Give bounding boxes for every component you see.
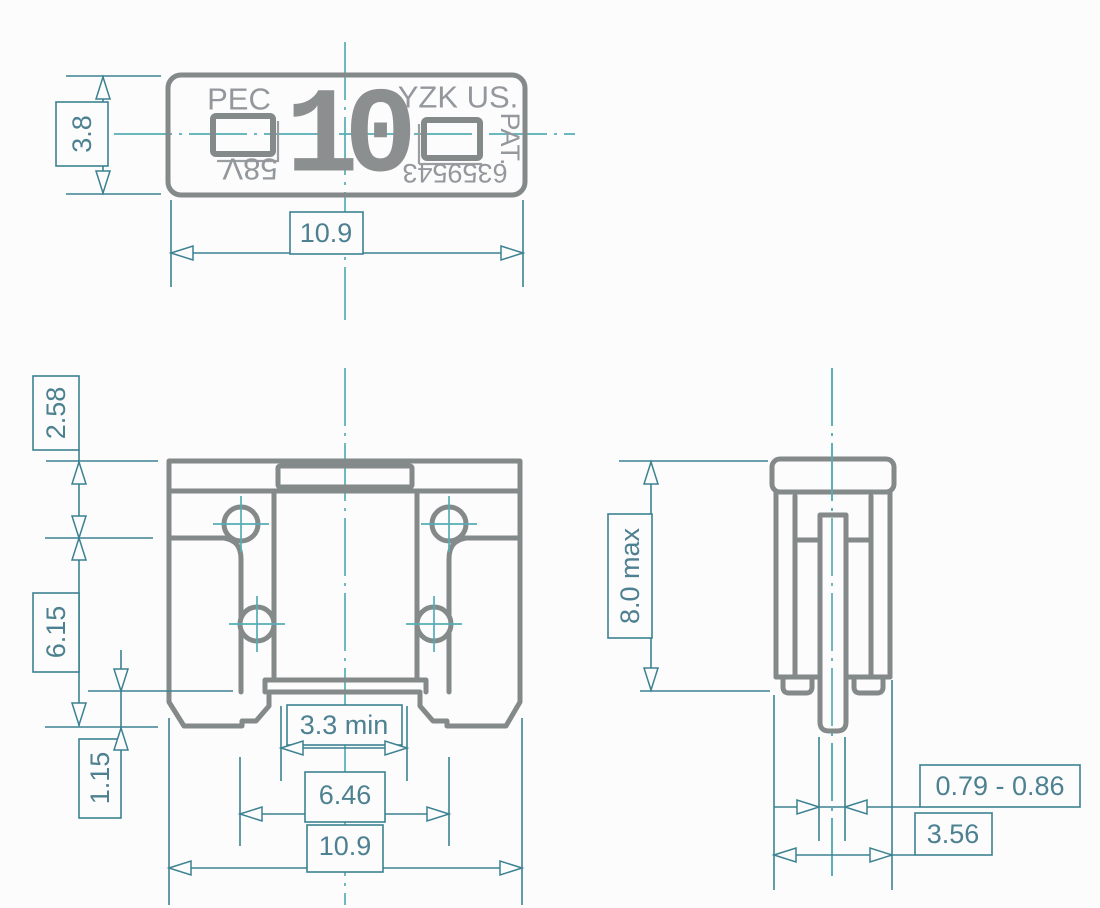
dim-top-height: 3.8	[67, 115, 97, 153]
right-terminal-column	[449, 538, 466, 692]
rivet-bottom-right-crosshair	[406, 596, 462, 652]
marking-patent-label: PAT.	[495, 112, 525, 165]
marking-patent-number: 6359543	[402, 158, 507, 188]
dim-terminal-span: 6.46	[319, 780, 372, 810]
dim-probe-gap: 3.3 min	[300, 710, 389, 740]
arrow-left-side-depth	[774, 848, 796, 862]
arrow-down-body-height	[72, 703, 86, 725]
left-terminal-column	[224, 538, 241, 692]
arrow-down-cap-height	[72, 516, 86, 538]
marking-voltage: 58V	[222, 152, 277, 187]
arrow-down-foot-height	[114, 669, 128, 691]
rivet-top-right-crosshair	[421, 496, 477, 552]
arrow-left-top-width	[171, 246, 193, 260]
arrow-right-terminal-thickness	[797, 800, 819, 814]
arrow-left-front-width	[169, 861, 191, 875]
dim-cap-height: 2.58	[41, 387, 71, 440]
arrow-right-side-depth	[870, 848, 892, 862]
drawing-canvas: PEC 10 YZK US. PAT. 58V 6359543	[0, 0, 1100, 908]
right-terminal-window	[424, 120, 480, 158]
top-view: PEC 10 YZK US. PAT. 58V 6359543	[168, 69, 525, 208]
side-cap	[772, 459, 894, 492]
dim-side-height: 8.0 max	[615, 527, 645, 624]
arrow-left-terminal-thickness	[845, 800, 867, 814]
arrow-down-top-height	[96, 171, 110, 193]
left-terminal-window	[213, 116, 273, 154]
arrow-up-top-height	[96, 77, 110, 99]
arrow-up-cap-height	[72, 462, 86, 484]
arrow-up-side-height	[644, 462, 658, 484]
rivet-bottom-left-crosshair	[229, 596, 285, 652]
arrow-right-terminal-span	[427, 807, 449, 821]
dim-terminal-thickness: 0.79 - 0.86	[935, 771, 1064, 801]
marking-amp-rating: 10	[285, 69, 411, 208]
arrow-left-terminal-span	[240, 807, 262, 821]
dimension-labels: 3.8 10.9 2.58 6.15 1.15 3.3 min 6.46 10.…	[33, 102, 1080, 872]
rivet-top-left-crosshair	[213, 496, 269, 552]
dim-front-width: 10.9	[319, 831, 372, 861]
arrow-right-top-width	[501, 246, 523, 260]
arrow-up-body-height	[72, 538, 86, 560]
dim-foot-height: 1.15	[85, 752, 115, 805]
fuse-technical-drawing: PEC 10 YZK US. PAT. 58V 6359543	[0, 0, 1100, 908]
side-view	[772, 368, 894, 878]
dim-side-depth: 3.56	[927, 819, 980, 849]
terminal-blade	[820, 515, 846, 731]
arrow-down-side-height	[644, 668, 658, 690]
marking-manufacturer: YZK US.	[398, 80, 519, 115]
marking-brand: PEC	[207, 82, 271, 117]
arrow-right-front-width	[500, 861, 522, 875]
dim-top-width: 10.9	[300, 218, 353, 248]
dim-body-height: 6.15	[41, 606, 71, 659]
